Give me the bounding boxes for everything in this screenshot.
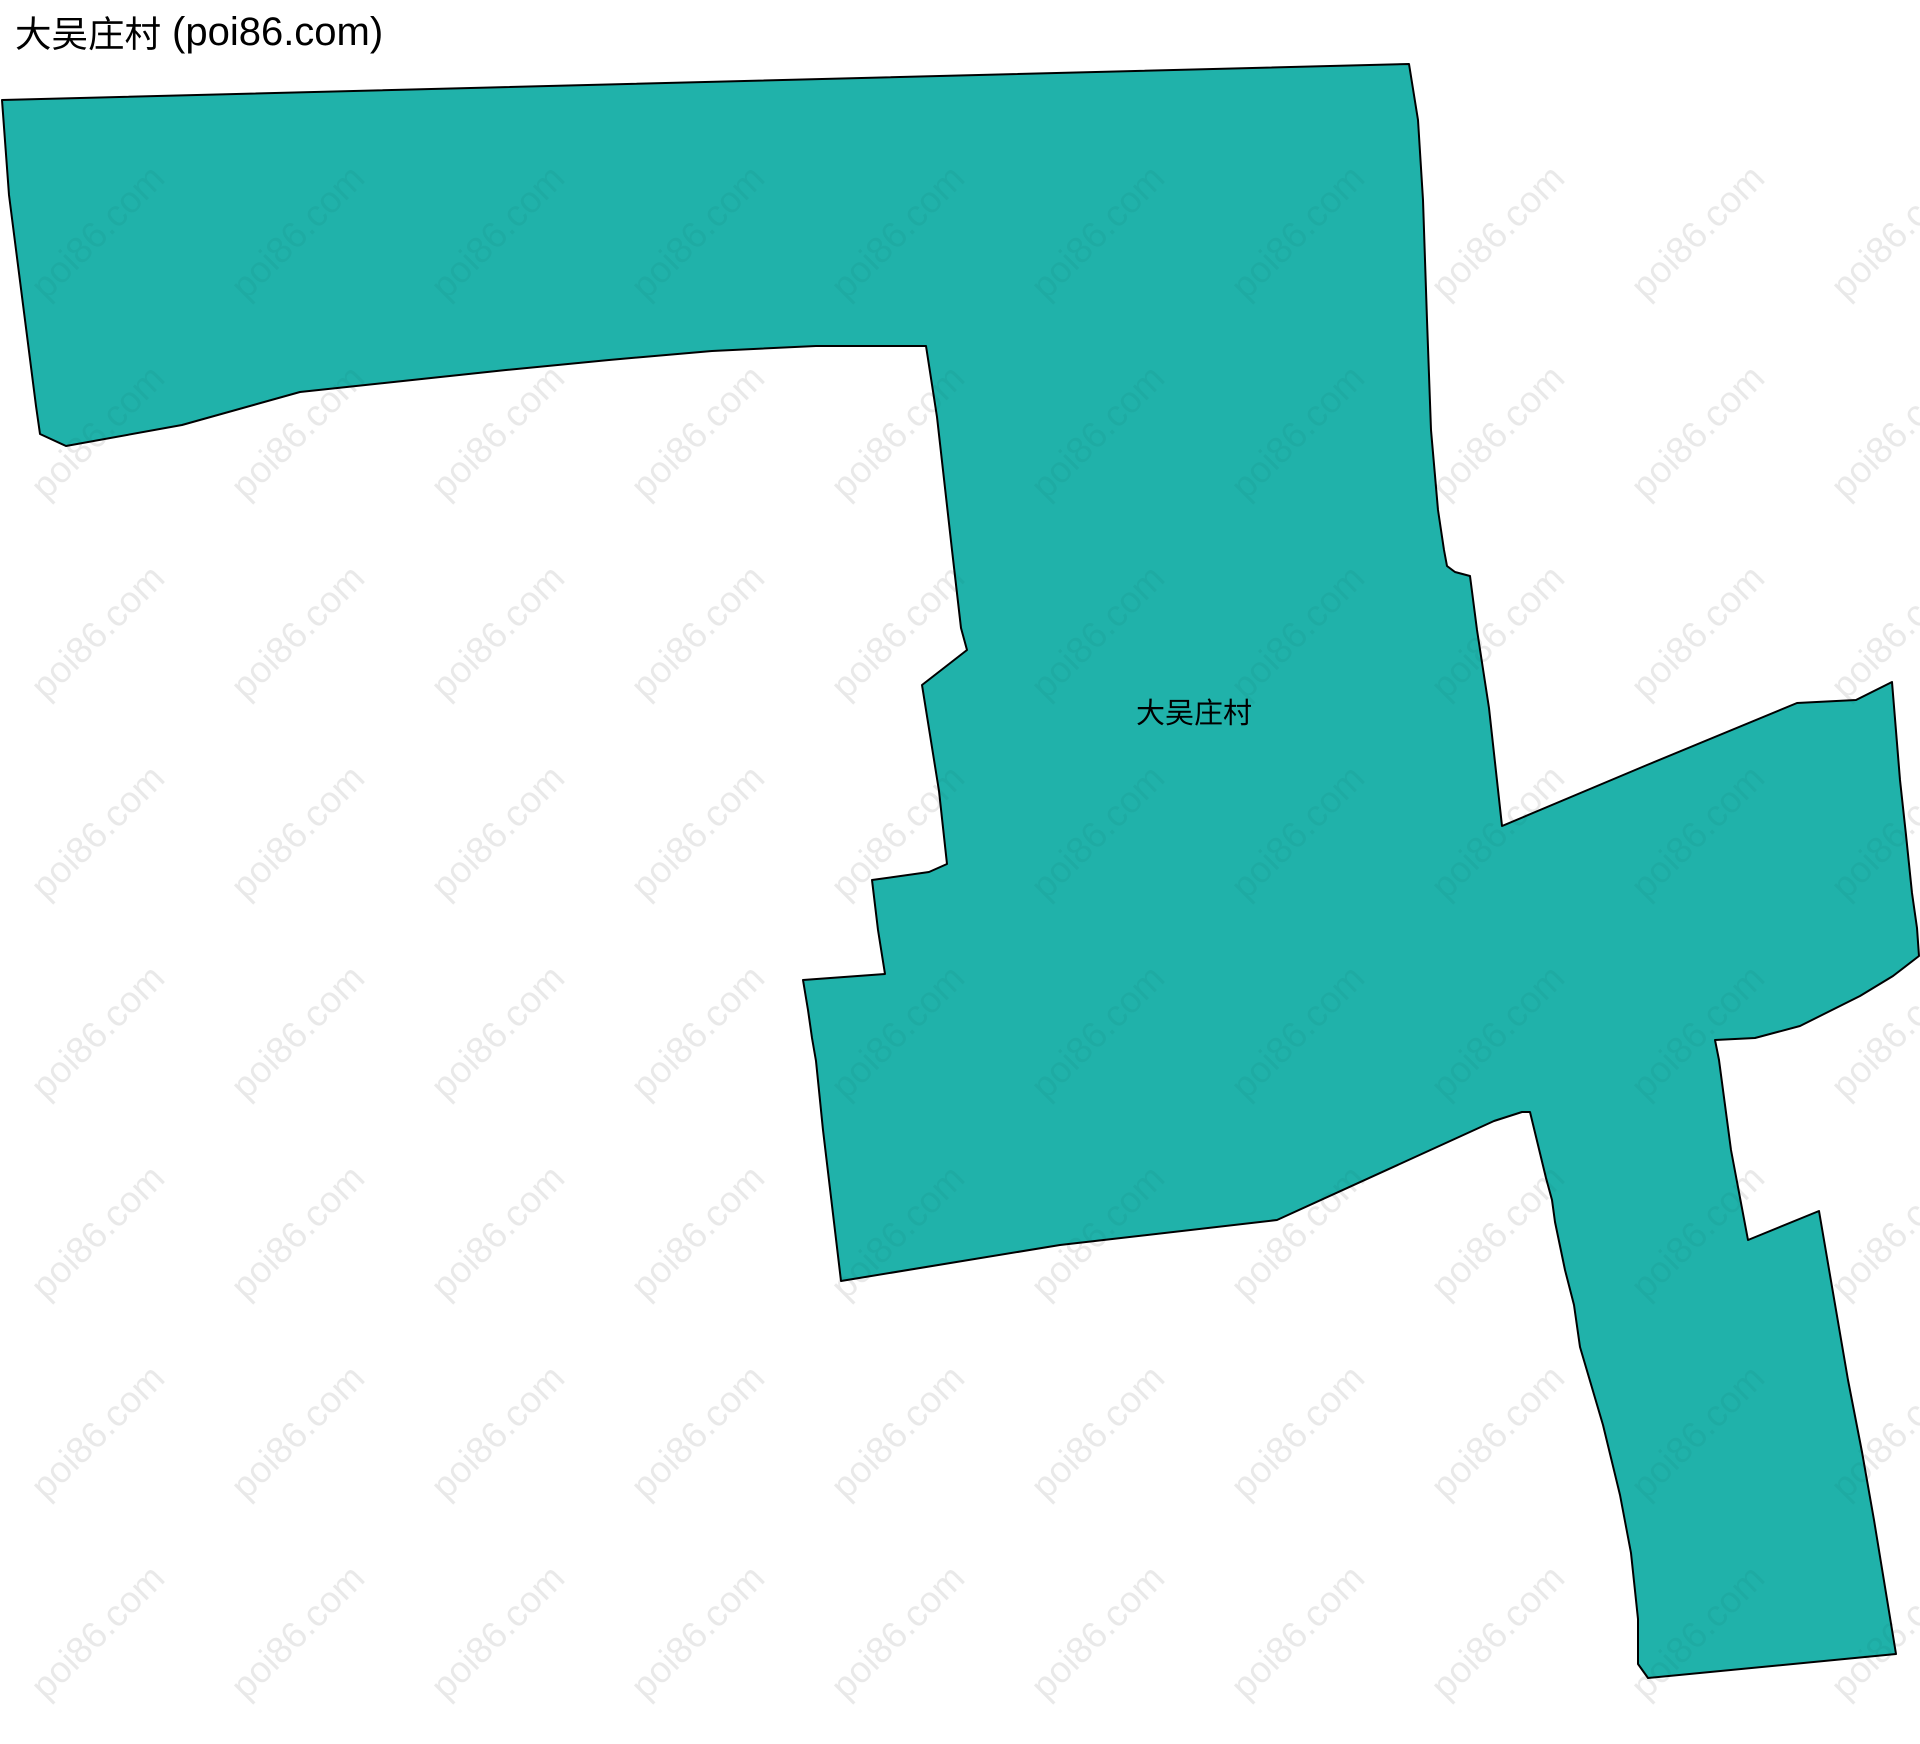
svg-text:(poi86.com): (poi86.com): [172, 10, 383, 54]
